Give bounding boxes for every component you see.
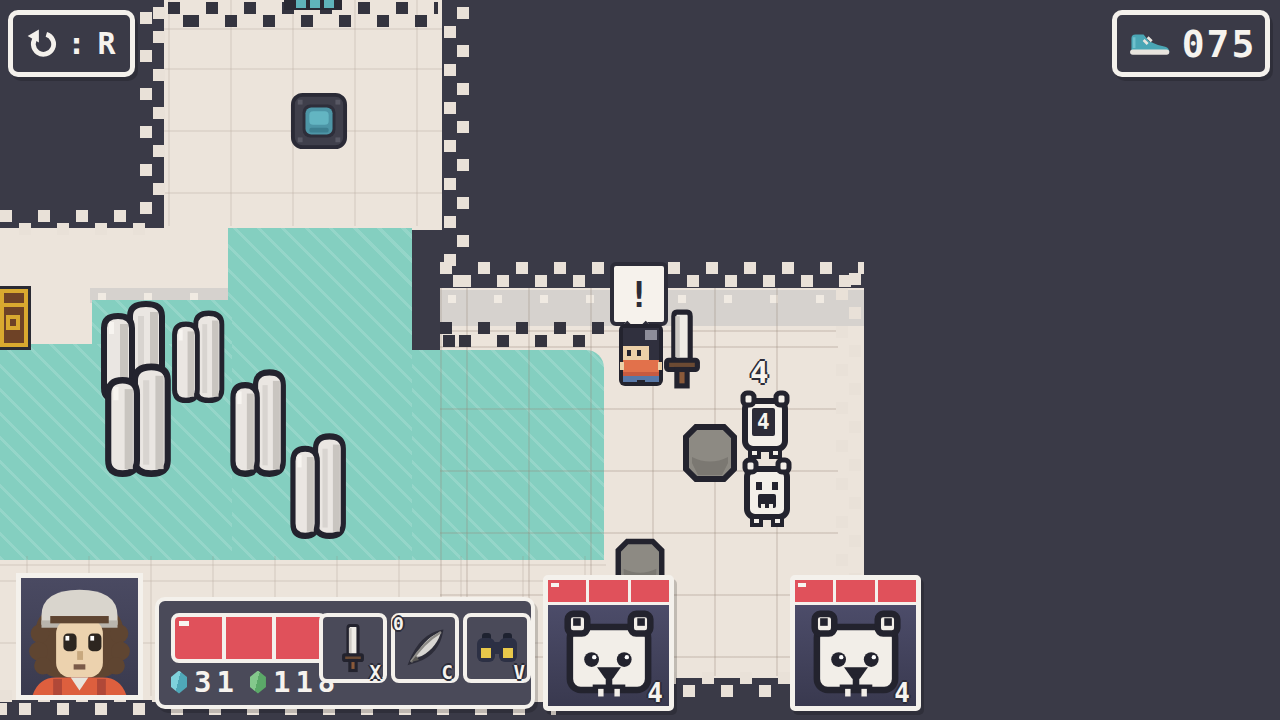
- bear-hp-overhead: 4: [750, 354, 771, 390]
- speech-bubble: !: [610, 262, 668, 326]
- polar-bear-face: [806, 607, 906, 699]
- currency-row: 31 118: [171, 665, 340, 699]
- enemy-panel-bear-1: 4: [543, 575, 674, 711]
- item-slot-sword[interactable]: X: [319, 613, 387, 683]
- undo-button[interactable]: : R: [8, 10, 135, 77]
- hp-segment: [795, 580, 833, 602]
- rock-pillar: [168, 306, 230, 404]
- rock-pillar: [226, 364, 292, 478]
- wall-studs: [140, 0, 166, 214]
- teal-gem-count: 31: [194, 665, 239, 699]
- player-face: [21, 578, 138, 695]
- slot-key-label: C: [442, 661, 455, 683]
- enemy-hp-bar: [548, 580, 669, 605]
- wall-studs-dark: [440, 322, 608, 348]
- rock-pillar: [286, 428, 352, 540]
- undo-separator: :: [67, 26, 87, 61]
- player-stats-panel: 31 118 X 0 C: [155, 597, 535, 709]
- enemy-hp-value: 4: [647, 678, 665, 708]
- enemy-panel-bear-2: 4: [790, 575, 921, 711]
- wall-studs: [444, 0, 470, 266]
- slot-key-label: V: [514, 661, 527, 683]
- treasure-chest: [0, 286, 31, 350]
- item-slot-binoculars[interactable]: V: [463, 613, 531, 683]
- rock-pillar: [100, 358, 178, 478]
- polar-bear-sprite: [740, 454, 794, 528]
- hp-segment: [631, 580, 669, 602]
- wall-studs: [0, 210, 152, 236]
- exit-door: [284, 0, 342, 10]
- polar-bear-face: [559, 607, 659, 699]
- shoe-icon: [1126, 29, 1172, 59]
- player-hp-bar: [171, 613, 327, 663]
- sword-item: [662, 308, 702, 390]
- green-gem-icon: [250, 671, 266, 694]
- hp-segment: [836, 580, 874, 602]
- water-pool: [412, 350, 604, 560]
- speech-bubble-text: !: [628, 274, 650, 315]
- gem-pedestal: [290, 92, 348, 150]
- hp-segment: [548, 580, 586, 602]
- sword-icon: [340, 623, 366, 673]
- enemy-hp-value: 4: [894, 678, 912, 708]
- undo-key-label: R: [98, 26, 118, 61]
- teal-gem-icon: [171, 671, 187, 694]
- enemy-hp-bar: [795, 580, 916, 605]
- hp-segment: [276, 617, 323, 659]
- step-count-value: 075: [1182, 22, 1257, 66]
- hp-segment: [589, 580, 627, 602]
- undo-arrow-icon: [25, 28, 57, 60]
- quill-icon: [403, 626, 447, 670]
- item-slot-quill[interactable]: 0 C: [391, 613, 459, 683]
- bear-hp-badge: 4: [752, 408, 775, 436]
- slot-ammo-count: 0: [393, 613, 406, 634]
- slot-key-label: X: [370, 661, 383, 683]
- hp-segment: [878, 580, 916, 602]
- hp-segment: [175, 617, 222, 659]
- step-counter: 075: [1112, 10, 1270, 77]
- boulder: [680, 418, 740, 488]
- game-viewport: ! 4 4: [0, 0, 1280, 720]
- player-portrait: [16, 573, 143, 700]
- hp-segment: [226, 617, 273, 659]
